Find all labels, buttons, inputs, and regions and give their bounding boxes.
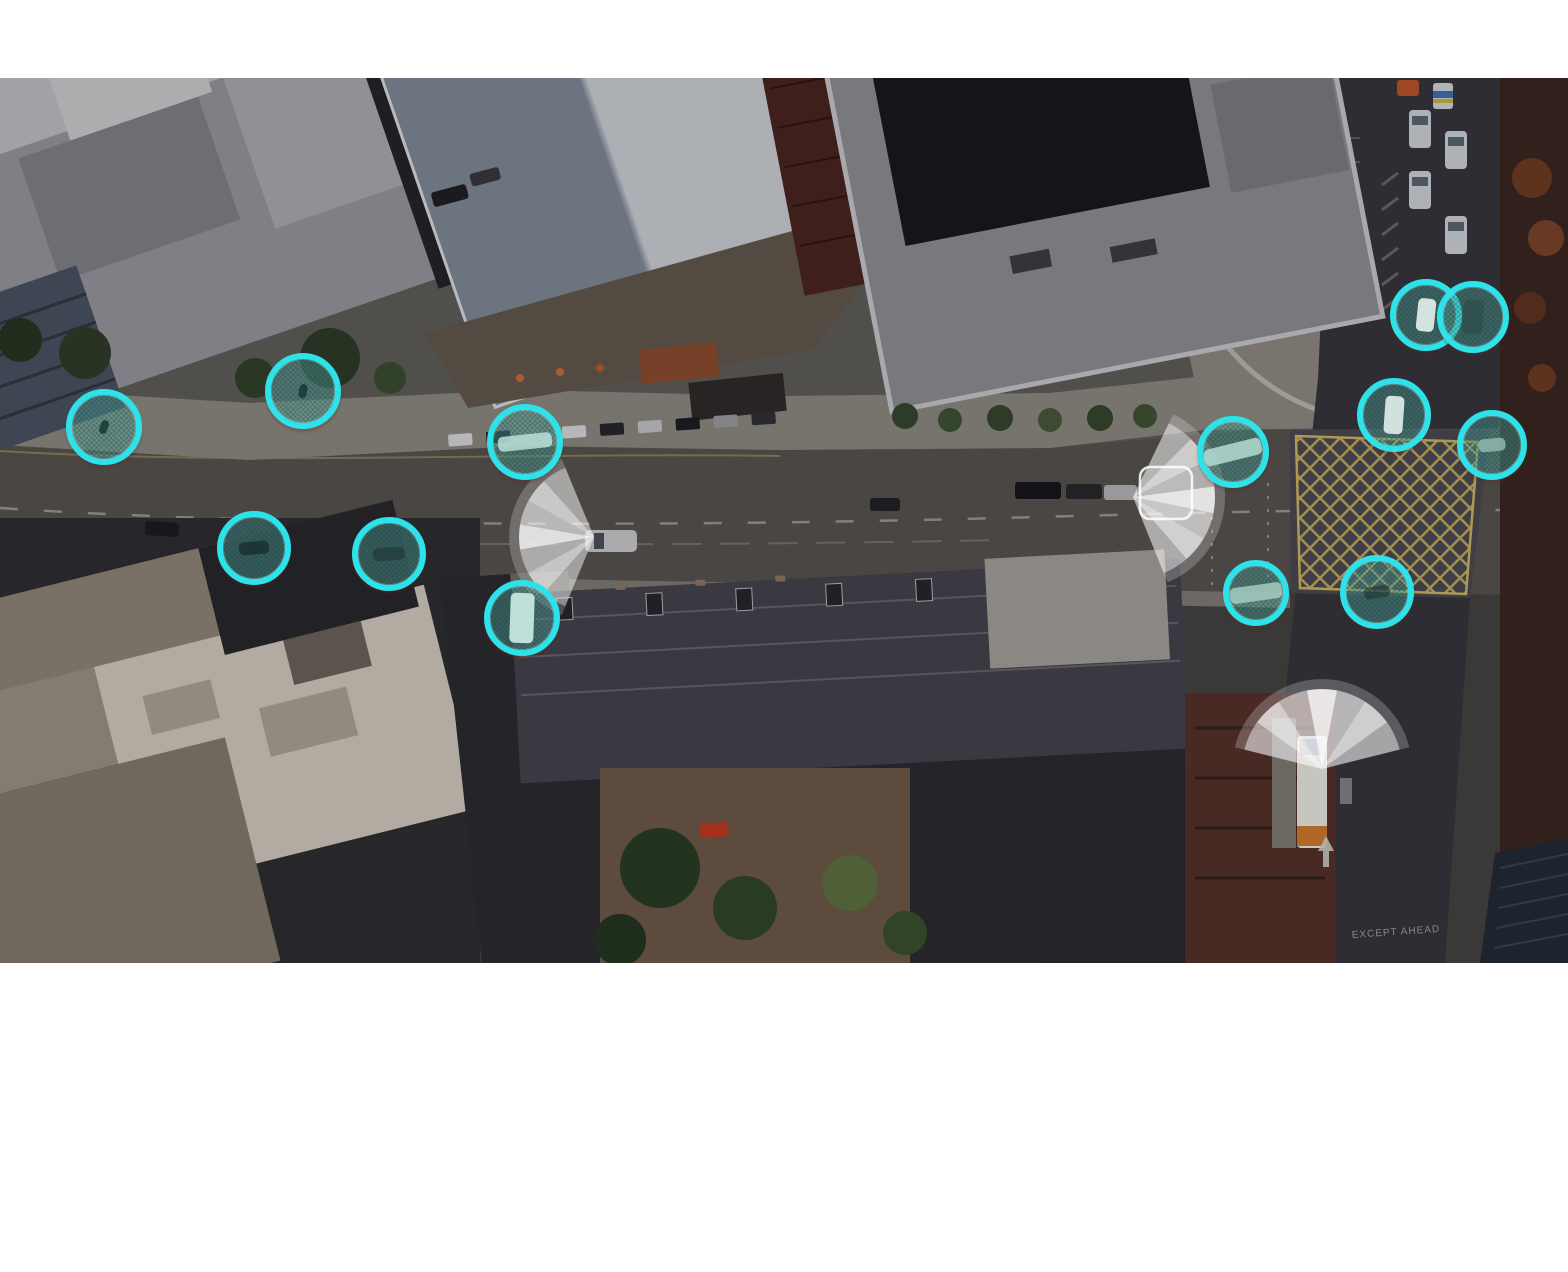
vehicle-highlight — [497, 432, 552, 453]
detection-circle-vehicle[interactable] — [1457, 410, 1527, 480]
aerial-photo-canvas: EXCEPT AHEAD — [0, 0, 1568, 1272]
vehicle-highlight — [509, 593, 535, 644]
vehicle-highlight — [1363, 584, 1391, 600]
vehicle-highlight — [1229, 581, 1283, 604]
detection-circle-vehicle[interactable] — [1223, 560, 1289, 626]
vehicle-highlight — [1203, 437, 1263, 468]
detection-circle-vehicle[interactable] — [1357, 378, 1431, 452]
vehicle-highlight — [1462, 299, 1484, 334]
vehicle-highlight — [1383, 395, 1405, 434]
vehicle-highlight — [373, 546, 406, 561]
pedestrian-highlight — [98, 419, 110, 435]
detection-circle-vehicle[interactable] — [352, 517, 426, 591]
detection-circle-vehicle[interactable] — [217, 511, 291, 585]
detection-circle-pedestrian[interactable] — [66, 389, 142, 465]
vehicle-highlight — [1415, 298, 1436, 333]
detection-circle-pedestrian[interactable] — [265, 353, 341, 429]
pedestrian-highlight — [298, 383, 308, 398]
vehicle-highlight — [238, 540, 269, 556]
vehicle-highlight — [1478, 437, 1506, 452]
aerial-photo: EXCEPT AHEAD — [0, 78, 1568, 963]
detection-circle-vehicle[interactable] — [1197, 416, 1269, 488]
detection-circle-vehicle[interactable] — [1340, 555, 1414, 629]
detection-circle-vehicle[interactable] — [484, 580, 560, 656]
detection-circle-vehicle[interactable] — [1437, 281, 1509, 353]
detections-layer — [0, 78, 1568, 963]
detection-circle-vehicle[interactable] — [487, 404, 563, 480]
